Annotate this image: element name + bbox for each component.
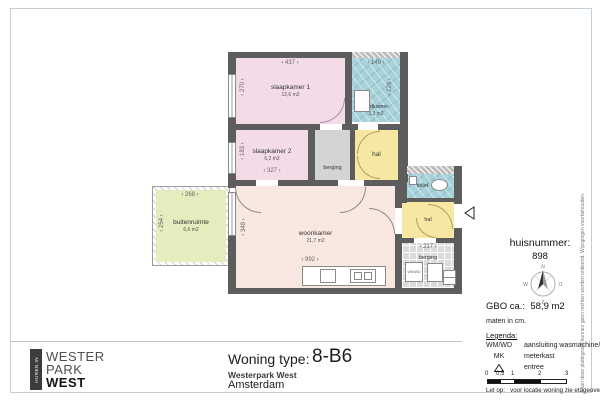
dim-arrow: ‹ xyxy=(281,60,283,66)
room-label: slaapkamer 2 xyxy=(252,148,291,156)
scale-tick: 1 xyxy=(511,371,514,377)
compass-icon: N O Z W xyxy=(522,263,564,305)
door-opening-slaapkamer2 xyxy=(256,180,278,186)
dim-arrow: › xyxy=(197,192,199,198)
wall-badkamer-right xyxy=(400,52,408,130)
dim-arrow: ‹ xyxy=(367,60,369,66)
legend-label-mk: meterkast xyxy=(524,353,555,360)
dim-slaapkamer1-width: ‹ 437 › xyxy=(270,60,310,66)
dim-arrow: › xyxy=(241,218,247,220)
wall-left-pier xyxy=(228,118,236,142)
huisnummer-value: 898 xyxy=(498,251,582,262)
dim-value: 149 xyxy=(371,60,381,66)
dim-badkamer-height: ‹ 223 › xyxy=(387,72,393,102)
dim-arrow: ‹ xyxy=(263,168,265,174)
dim-slaapkamer2-width: ‹ 327 › xyxy=(252,168,292,174)
door-opening-hal xyxy=(338,180,364,186)
dim-buitenruimte-width: ‹ 268 › xyxy=(170,192,210,198)
project-city: Amsterdam xyxy=(228,379,284,391)
entrance-arrow-icon xyxy=(464,206,475,220)
dim-arrow: › xyxy=(297,60,299,66)
dim-value: 437 xyxy=(285,60,295,66)
scale-segment xyxy=(514,380,541,383)
dim-value: 270 xyxy=(240,82,246,92)
room-area: 6,6 m2 xyxy=(183,227,198,233)
room-label: slaapkamer 1 xyxy=(271,84,310,92)
dim-value: 348 xyxy=(241,222,247,232)
wall-left-pier xyxy=(228,52,236,74)
dim-arrow: › xyxy=(159,214,165,216)
dim-arrow: ‹ xyxy=(419,244,421,250)
window-slaapkamer2 xyxy=(228,142,236,174)
gbo-value: 58,9 m2 xyxy=(530,301,564,312)
room-label: berging xyxy=(323,165,341,172)
toilet-bowl-icon xyxy=(431,179,448,191)
door-opening-slaapkamer1 xyxy=(320,124,342,130)
dim-value: 217 xyxy=(423,244,433,250)
wall-bottom xyxy=(228,288,462,294)
scale-segment xyxy=(488,380,501,383)
note-label: Let op: xyxy=(486,387,505,394)
dim-arrow: › xyxy=(317,257,319,263)
compass-o: O xyxy=(559,282,563,288)
legend-label-wmwd: aansluiting wasmachine/wasdroger xyxy=(524,342,600,349)
dim-value: 327 xyxy=(267,168,277,174)
washbasin-icon xyxy=(354,90,370,112)
scale-tick: 0,5 xyxy=(496,371,504,377)
dim-arrow: ‹ xyxy=(240,158,246,160)
dim-buitenruimte-height: ‹ 254 › xyxy=(159,208,165,238)
titleband-divider xyxy=(10,341,462,342)
dim-woonkamer-width: ‹ 992 › xyxy=(290,257,330,263)
legend-label-entree: entree xyxy=(524,364,544,371)
woning-type-value: 8-B6 xyxy=(312,346,352,368)
dim-value: 183 xyxy=(240,146,246,156)
dim-arrow: › xyxy=(383,60,385,66)
note-text: voor locatie woning zie etageoverzicht. xyxy=(510,387,600,394)
dim-arrow: ‹ xyxy=(387,94,393,96)
dim-slaapkamer1-height: ‹ 270 › xyxy=(240,72,246,102)
wall-toilet-top xyxy=(402,166,462,174)
dim-arrow: › xyxy=(387,78,393,80)
wall-woonkamer-top xyxy=(228,180,402,186)
gbo-line: GBO ca.: 58,9 m2 xyxy=(486,301,565,312)
door-opening-berging xyxy=(414,238,436,243)
wm-wd-unit: WM/WD xyxy=(405,262,423,282)
dim-woonkamer-height: ‹ 348 › xyxy=(241,212,247,242)
scale-tick: 2 xyxy=(538,371,541,377)
dim-berging-width: ‹ 217 › xyxy=(408,244,448,250)
dim-arrow: › xyxy=(279,168,281,174)
dim-slaapkamer2-height: ‹ 183 › xyxy=(240,136,246,166)
meterkast-icon xyxy=(443,270,456,285)
units-note: maten in cm. xyxy=(486,318,526,325)
stove-icon xyxy=(320,269,336,283)
room-label: berging xyxy=(419,255,437,262)
scale-tick: 3 xyxy=(565,371,568,377)
dim-arrow: ‹ xyxy=(181,192,183,198)
room-area: 12,6 m2 xyxy=(281,92,299,98)
dim-arrow: ‹ xyxy=(159,230,165,232)
wall-woonkamer-right xyxy=(395,180,402,294)
dim-value: 992 xyxy=(305,257,315,263)
huisnummer-label: huisnummer: xyxy=(498,237,582,249)
legend-heading: Legenda: xyxy=(486,331,517,340)
toilet-cistern-icon xyxy=(409,176,417,185)
legend-key-mk: MK xyxy=(486,353,512,360)
room-label: toilet xyxy=(417,183,429,190)
gbo-label: GBO ca.: xyxy=(486,301,525,312)
compass-w: W xyxy=(523,282,528,288)
dim-arrow: › xyxy=(240,78,246,80)
dim-value: 223 xyxy=(387,82,393,92)
window-slaapkamer1 xyxy=(228,74,236,118)
logo-west: WEST xyxy=(46,376,86,389)
room-label: buitenruimte xyxy=(173,219,209,227)
compass-n: N xyxy=(541,265,545,271)
sink-basin xyxy=(354,272,362,280)
dim-arrow: › xyxy=(240,142,246,144)
dim-value: 268 xyxy=(185,192,195,198)
logo-bar: HUREN IN xyxy=(30,349,42,390)
scale-bar xyxy=(487,379,567,384)
entrance-door-opening xyxy=(454,204,462,228)
wall-left-pier xyxy=(228,236,236,288)
door-opening-badkamer xyxy=(358,124,378,130)
legend-key-wmwd: WM/WD xyxy=(486,342,518,349)
dim-arrow: ‹ xyxy=(241,234,247,236)
wall-slaap1-bottom xyxy=(228,124,408,130)
room-area: 6,2 m2 xyxy=(264,156,279,162)
dim-arrow: ‹ xyxy=(240,94,246,96)
boiler-unit xyxy=(427,263,443,282)
room-area: 3,3 m2 xyxy=(368,111,383,117)
dim-badkamer-width: ‹ 149 › xyxy=(356,60,396,66)
floorplan-page: slaapkamer 1 12,6 m2 badkamer 3,3 m2 sla… xyxy=(0,0,600,400)
scale-tick: 0 xyxy=(485,371,488,377)
wall-slaap1-badkamer xyxy=(345,52,352,130)
logo-tagline: HUREN IN xyxy=(34,357,39,383)
room-berging-boven: berging xyxy=(315,130,350,180)
woning-type-label: Woning type: xyxy=(228,351,309,367)
sink-basin xyxy=(364,272,372,280)
disclaimer-vertical: Aan deze plattegrond kunnen geen rechten… xyxy=(580,138,586,390)
wall-berging-hal xyxy=(350,130,355,182)
wm-wd-marker: WM/WD xyxy=(406,270,422,274)
dim-value: 254 xyxy=(159,218,165,228)
wall-slaap2-berging xyxy=(308,124,315,182)
door-opening-woonkamer-hal xyxy=(395,208,402,234)
dim-arrow: › xyxy=(435,244,437,250)
balcony-door xyxy=(228,192,236,236)
room-buitenruimte: buitenruimte 6,6 m2 xyxy=(156,190,226,262)
room-area: 21,7 m2 xyxy=(306,238,324,244)
wall-toilet-hal xyxy=(402,198,454,202)
dim-arrow: ‹ xyxy=(301,257,303,263)
room-label: woonkamer xyxy=(299,230,333,238)
